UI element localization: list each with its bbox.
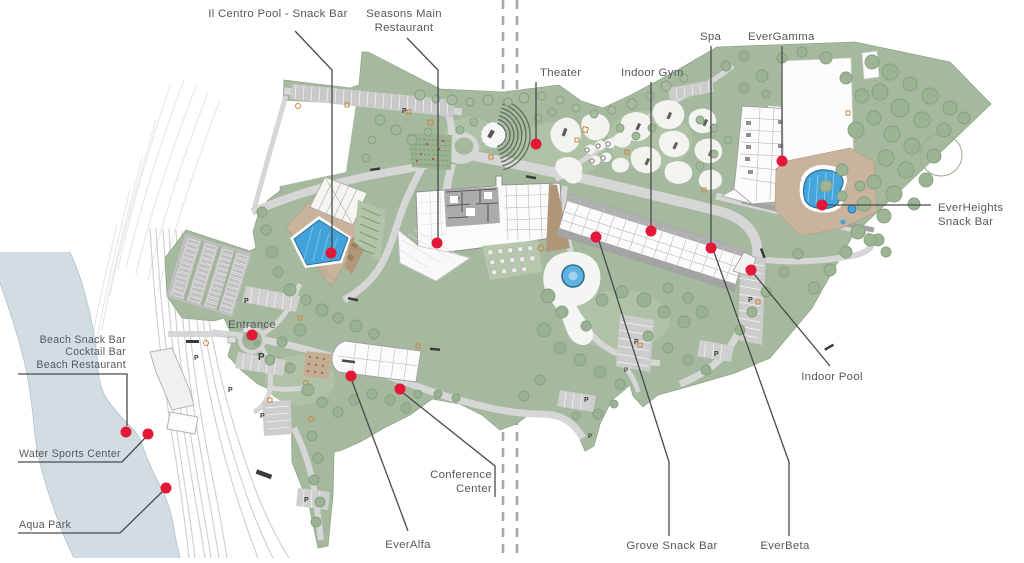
svg-text:P: P	[194, 355, 199, 362]
svg-text:P: P	[244, 298, 249, 305]
svg-text:Theater: Theater	[540, 67, 581, 79]
svg-text:P: P	[588, 434, 592, 440]
svg-text:Il Centro Pool - Snack Bar: Il Centro Pool - Snack Bar	[208, 8, 347, 20]
svg-text:P: P	[714, 351, 719, 358]
svg-text:Restaurant: Restaurant	[375, 22, 434, 34]
svg-text:Center: Center	[456, 483, 492, 495]
svg-text:Water Sports Center: Water Sports Center	[19, 448, 121, 460]
svg-text:EverGamma: EverGamma	[748, 31, 815, 43]
svg-text:P: P	[228, 387, 233, 394]
svg-text:Indoor Gym: Indoor Gym	[621, 67, 684, 79]
svg-text:Spa: Spa	[700, 31, 722, 43]
svg-text:Beach Restaurant: Beach Restaurant	[36, 359, 126, 371]
svg-text:P: P	[624, 368, 628, 374]
svg-text:EverHeights: EverHeights	[938, 202, 1003, 214]
svg-text:P: P	[634, 339, 639, 346]
svg-text:Snack Bar: Snack Bar	[938, 216, 993, 228]
svg-text:P: P	[304, 497, 309, 504]
svg-text:P: P	[260, 413, 265, 420]
svg-text:P: P	[584, 397, 589, 404]
svg-text:Entrance: Entrance	[228, 319, 276, 331]
svg-text:Grove Snack Bar: Grove Snack Bar	[626, 540, 717, 552]
svg-text:P: P	[748, 297, 753, 304]
svg-text:Cocktail Bar: Cocktail Bar	[65, 346, 126, 358]
svg-text:P: P	[258, 352, 265, 363]
svg-text:Seasons Main: Seasons Main	[366, 8, 442, 20]
svg-text:Beach Snack Bar: Beach Snack Bar	[40, 334, 127, 346]
svg-text:EverAlfa: EverAlfa	[385, 539, 431, 551]
svg-text:Conference: Conference	[430, 469, 492, 481]
svg-text:Indoor Pool: Indoor Pool	[801, 371, 863, 383]
svg-text:P: P	[402, 108, 407, 115]
svg-text:EverBeta: EverBeta	[760, 540, 810, 552]
svg-text:Aqua Park: Aqua Park	[19, 519, 72, 531]
